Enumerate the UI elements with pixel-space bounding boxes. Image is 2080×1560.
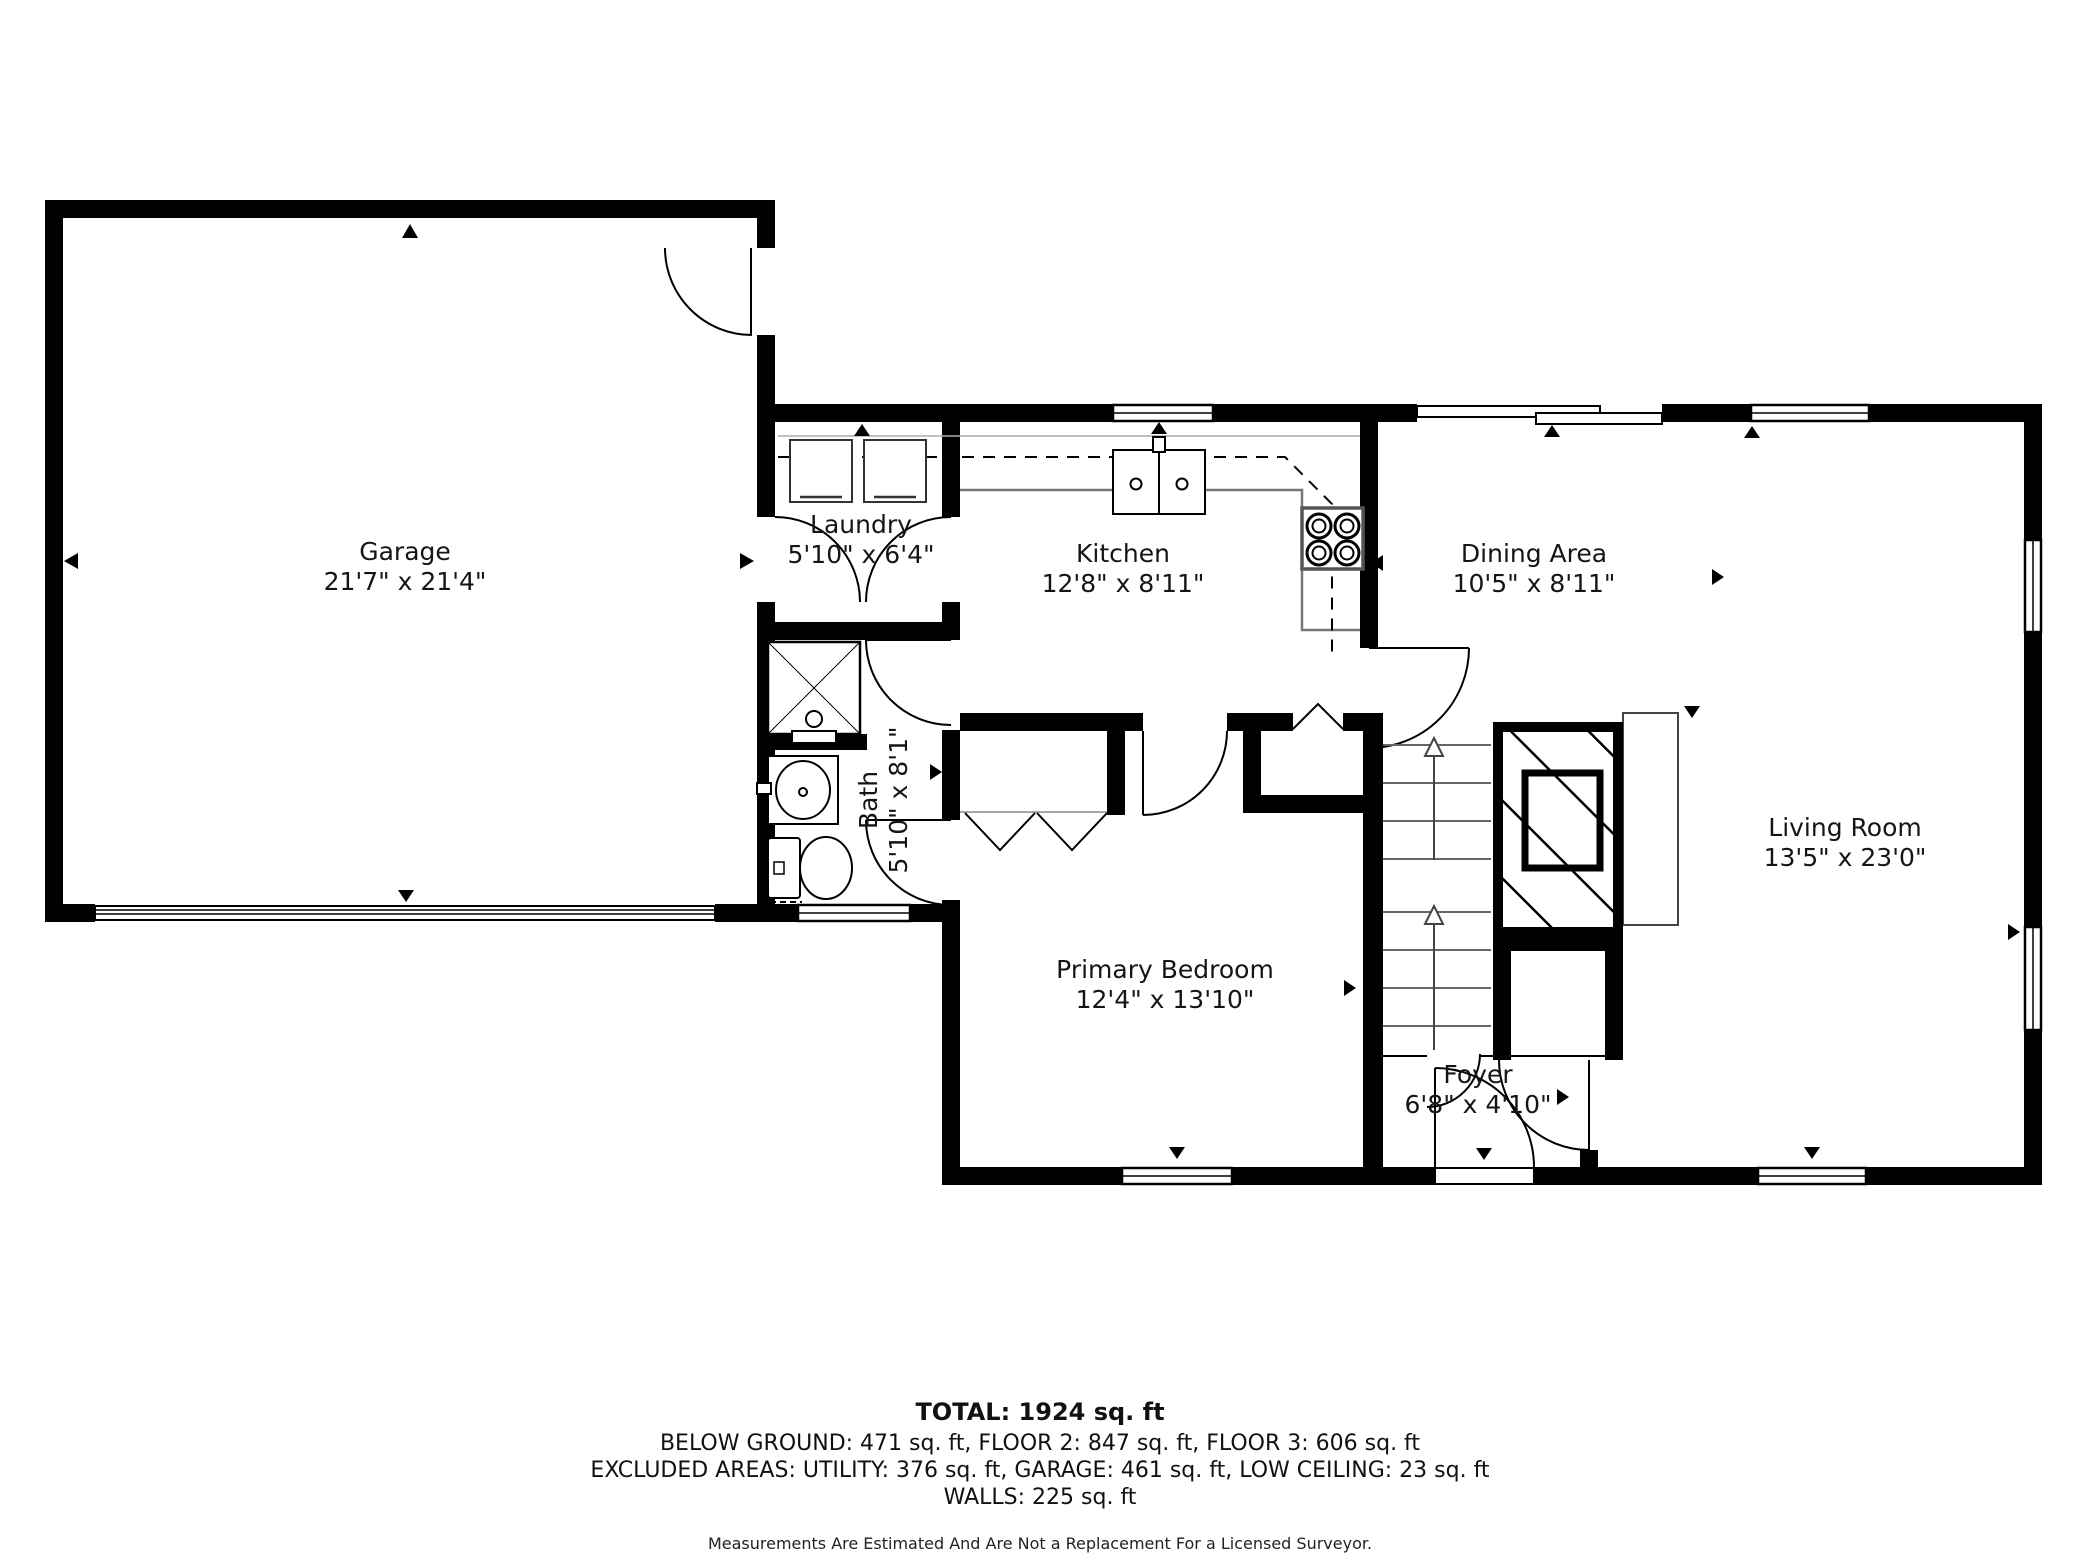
summary-footer: TOTAL: 1924 sq. ft BELOW GROUND: 471 sq.… bbox=[0, 1398, 2080, 1553]
room-name: Laundry bbox=[788, 510, 935, 540]
living-right-window-1 bbox=[2025, 540, 2041, 632]
living-top-window bbox=[1751, 405, 1869, 421]
room-dims: 6'8" x 4'10" bbox=[1405, 1090, 1552, 1120]
sliding-glass-door bbox=[1417, 406, 1662, 424]
hall-closet-opening bbox=[1293, 704, 1343, 729]
excluded-areas: EXCLUDED AREAS: UTILITY: 376 sq. ft, GAR… bbox=[0, 1458, 2080, 1483]
arrow-right-icon bbox=[740, 553, 754, 569]
walls bbox=[45, 200, 2042, 1185]
stove bbox=[1302, 508, 1363, 569]
arrow-down-icon bbox=[1804, 1147, 1820, 1159]
arrow-up-icon bbox=[1744, 426, 1760, 438]
arrow-right-icon bbox=[1557, 1089, 1569, 1105]
arrow-up-icon bbox=[1544, 425, 1560, 437]
kitchen-window bbox=[1113, 405, 1213, 421]
room-name: Living Room bbox=[1764, 813, 1927, 843]
room-dims: 12'4" x 13'10" bbox=[1056, 985, 1274, 1015]
kitchen-dining-door bbox=[1369, 648, 1469, 748]
arrow-right-icon bbox=[1344, 980, 1356, 996]
toilet bbox=[768, 837, 852, 902]
floor-areas: BELOW GROUND: 471 sq. ft, FLOOR 2: 847 s… bbox=[0, 1431, 2080, 1456]
shower bbox=[768, 642, 860, 743]
markers bbox=[64, 224, 2020, 1160]
room-label-bath: Bath 5'10" x 8'1" bbox=[854, 727, 914, 874]
total-area: TOTAL: 1924 sq. ft bbox=[0, 1398, 2080, 1426]
garage-side-door bbox=[665, 248, 775, 335]
floor-plan-drawing bbox=[0, 0, 2080, 1560]
room-name: Primary Bedroom bbox=[1056, 955, 1274, 985]
room-dims: 5'10" x 6'4" bbox=[788, 540, 935, 570]
room-dims: 13'5" x 23'0" bbox=[1764, 843, 1927, 873]
bedroom-window bbox=[1122, 1168, 1232, 1184]
room-label-laundry: Laundry 5'10" x 6'4" bbox=[788, 510, 935, 570]
arrow-up-icon bbox=[402, 224, 418, 238]
room-dims: 5'10" x 8'1" bbox=[884, 727, 914, 874]
windows bbox=[95, 405, 2041, 1184]
room-name: Foyer bbox=[1405, 1060, 1552, 1090]
vanity-sink bbox=[757, 756, 838, 824]
room-label-foyer: Foyer 6'8" x 4'10" bbox=[1405, 1060, 1552, 1120]
stairs bbox=[1383, 738, 1491, 1050]
washer bbox=[790, 440, 852, 502]
room-name: Kitchen bbox=[1042, 539, 1205, 569]
bedroom-closet-bifold bbox=[960, 812, 1107, 850]
room-label-garage: Garage 21'7" x 21'4" bbox=[324, 537, 487, 597]
room-dims: 12'8" x 8'11" bbox=[1042, 569, 1205, 599]
bedroom-door bbox=[1143, 731, 1227, 815]
room-label-primary-bedroom: Primary Bedroom 12'4" x 13'10" bbox=[1056, 955, 1274, 1015]
arrow-left-icon bbox=[64, 553, 78, 569]
room-label-kitchen: Kitchen 12'8" x 8'11" bbox=[1042, 539, 1205, 599]
arrow-down-icon bbox=[398, 890, 414, 902]
floor-plan: Garage 21'7" x 21'4" Laundry 5'10" x 6'4… bbox=[0, 0, 2080, 1560]
dryer bbox=[864, 440, 926, 502]
walls-area: WALLS: 225 sq. ft bbox=[0, 1485, 2080, 1510]
hearth bbox=[1623, 713, 1678, 925]
living-bottom-window bbox=[1758, 1168, 1866, 1184]
room-name: Garage bbox=[324, 537, 487, 567]
fireplace bbox=[1498, 713, 1678, 932]
living-right-window-2 bbox=[2025, 927, 2041, 1030]
room-name: Bath bbox=[854, 727, 884, 874]
arrow-down-icon bbox=[1476, 1148, 1492, 1160]
room-dims: 21'7" x 21'4" bbox=[324, 567, 487, 597]
room-label-living-room: Living Room 13'5" x 23'0" bbox=[1764, 813, 1927, 873]
room-dims: 10'5" x 8'11" bbox=[1453, 569, 1616, 599]
arrow-down-icon bbox=[1169, 1147, 1185, 1159]
arrow-right-icon bbox=[2008, 924, 2020, 940]
arrow-right-icon bbox=[1712, 569, 1724, 585]
arrow-down-icon bbox=[1684, 706, 1700, 718]
garage-door bbox=[95, 906, 715, 920]
bath-window bbox=[798, 905, 910, 921]
bath-north-door bbox=[866, 640, 951, 725]
room-label-dining-area: Dining Area 10'5" x 8'11" bbox=[1453, 539, 1616, 599]
arrow-up-icon bbox=[854, 424, 870, 436]
arrow-right-icon bbox=[930, 764, 942, 780]
room-name: Dining Area bbox=[1453, 539, 1616, 569]
disclaimer-text: Measurements Are Estimated And Are Not a… bbox=[0, 1534, 2080, 1553]
